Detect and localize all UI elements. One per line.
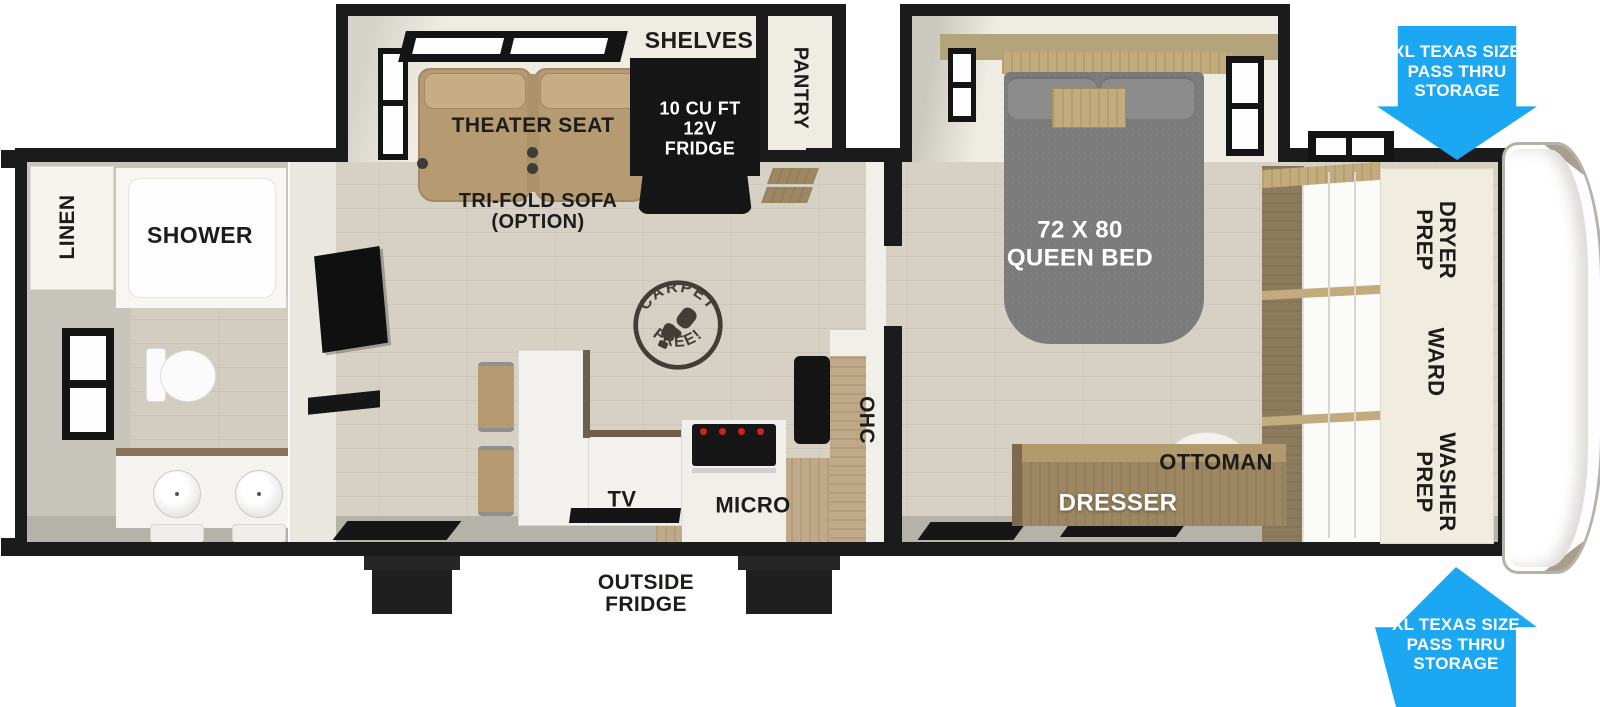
pantry-step: [761, 187, 813, 203]
theater-seat-label: THEATER SEAT: [452, 115, 615, 137]
fridge-label: 10 CU FT 12V FRIDGE: [659, 99, 740, 158]
headboard-shelf: [1002, 52, 1232, 74]
bedroom-wall-face: [866, 160, 886, 544]
kitchen-island: [518, 350, 590, 526]
micro-label: MICRO: [715, 493, 790, 516]
queen-bed-label: 72 X 80 QUEEN BED: [1007, 216, 1153, 271]
barstool: [478, 446, 514, 516]
dresser-label: DRESSER: [1059, 490, 1178, 515]
wardrobe-panel-seam: [1328, 172, 1330, 538]
tv-entertainment-unit: [314, 246, 388, 353]
vanity-drawer: [150, 524, 204, 543]
island-bar-ledge: [583, 350, 590, 438]
bed-shelf-box: [1052, 88, 1126, 128]
dresser-side: [1012, 444, 1022, 526]
bedroom-front-window: [1308, 131, 1394, 162]
kitchen-sink: [794, 356, 830, 444]
linen-label: LINEN: [57, 195, 79, 260]
bedroom-wall-upper: [884, 160, 902, 246]
entry-step-lip: [364, 556, 460, 570]
stove-knob: [738, 428, 745, 435]
tv-label: TV: [608, 487, 637, 510]
stove-knob: [700, 428, 707, 435]
pass-thru-storage-label: XL TEXAS SIZE PASS THRU STORAGE: [1375, 615, 1537, 674]
pass-thru-storage-arrow-bottom: XL TEXAS SIZE PASS THRU STORAGE: [1375, 567, 1537, 707]
cupholder-icon: [417, 158, 428, 169]
wardrobe-panels: [1302, 168, 1382, 542]
pantry-step: [767, 168, 819, 184]
wardrobe-panel-seam: [1354, 172, 1356, 538]
front-cap: [1502, 142, 1600, 574]
ohc-label: OHC: [855, 396, 877, 444]
bottom-wall: [15, 542, 1510, 556]
living-slide-left-window: [378, 48, 408, 160]
front-cap-face: [1509, 149, 1588, 567]
pass-thru-storage-label: XL TEXAS SIZE PASS THRU STORAGE: [1377, 42, 1537, 101]
stove-knob: [757, 428, 764, 435]
shower-label: SHOWER: [147, 223, 253, 247]
pass-thru-storage-arrow-top: XL TEXAS SIZE PASS THRU STORAGE: [1377, 26, 1537, 160]
entry-step-lip: [738, 556, 840, 570]
rear-wall: [15, 148, 27, 556]
shelves-label: SHELVES: [645, 28, 753, 52]
seat-back-cushion: [424, 73, 526, 109]
ottoman-label: OTTOMAN: [1159, 450, 1273, 473]
vanity-sink: [235, 470, 283, 518]
vanity-drawer: [232, 524, 286, 543]
bedroom-slide-left-window: [948, 48, 976, 122]
seat-back-cushion: [540, 73, 642, 109]
top-wall-rear: [15, 148, 345, 162]
pantry-label: PANTRY: [790, 47, 811, 129]
entry-door-sill: [333, 521, 462, 540]
fridge-12v-door: [638, 176, 752, 214]
cupholder-icon: [527, 147, 538, 158]
bedroom-slide-right-window: [1226, 56, 1264, 156]
stove-knob: [719, 428, 726, 435]
rear-bumper-top: [1, 150, 15, 168]
trifold-sofa-label: TRI-FOLD SOFA (OPTION): [459, 191, 618, 233]
carpet-free-badge: CARPET FREE!: [631, 278, 725, 372]
toilet-bowl: [160, 350, 216, 402]
dryer-prep-label: DRYER PREP: [1413, 201, 1459, 279]
floorplan-canvas: CARPET FREE!: [0, 0, 1600, 707]
bedroom-wall-lower: [884, 326, 902, 544]
barstool: [478, 362, 514, 432]
stove-handle: [692, 468, 776, 473]
outside-fridge-label: OUTSIDE FRIDGE: [598, 572, 694, 616]
floor-vent: [917, 522, 1026, 540]
washer-prep-label: WASHER PREP: [1413, 433, 1459, 532]
rear-bumper-bottom: [1, 538, 15, 556]
ward-label: WARD: [1424, 328, 1447, 397]
bathroom-window: [62, 328, 114, 440]
top-wall-mid: [806, 148, 912, 162]
vanity-sink: [153, 470, 201, 518]
living-slide-top-window: [398, 31, 628, 62]
island-bar-ledge: [583, 430, 681, 437]
cupholder-icon: [527, 163, 538, 174]
